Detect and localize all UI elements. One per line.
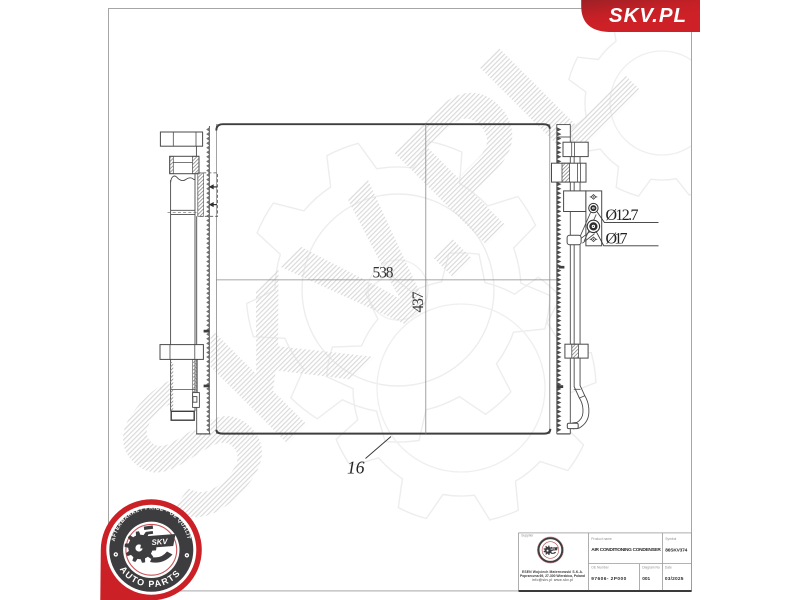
svg-text:97606- 2P000: 97606- 2P000: [591, 576, 626, 582]
svg-text:Ø12.7: Ø12.7: [606, 207, 639, 224]
svg-text:03/2025: 03/2025: [665, 576, 684, 582]
svg-text:AIR CONDITIONING CONDENSER: AIR CONDITIONING CONDENSER: [591, 547, 661, 553]
svg-text:16: 16: [347, 458, 365, 478]
svg-text:Symbol: Symbol: [665, 537, 676, 541]
svg-text:437: 437: [410, 291, 427, 312]
svg-text:001: 001: [642, 576, 650, 582]
svg-text:SKV: SKV: [550, 549, 555, 551]
svg-text:Supplier: Supplier: [521, 534, 534, 538]
svg-text:Ø17: Ø17: [606, 230, 628, 247]
svg-text:Date: Date: [665, 566, 672, 570]
svg-text:OE Number: OE Number: [591, 566, 609, 570]
svg-text:info@skv.pl www.skv.pl: info@skv.pl www.skv.pl: [532, 578, 573, 582]
svg-text:538: 538: [373, 265, 394, 282]
svg-text:SKV.PL: SKV.PL: [609, 4, 687, 27]
svg-text:Product name: Product name: [591, 537, 612, 541]
svg-text:86SKV374: 86SKV374: [665, 548, 687, 554]
svg-text:ESEN Wojciech Maternowski S.K.: ESEN Wojciech Maternowski S.K.A.: [522, 570, 583, 574]
svg-text:Poprzeczna 69, 27-300 Wierzbic: Poprzeczna 69, 27-300 Wierzbica, Poland: [520, 574, 585, 578]
svg-text:SKV: SKV: [151, 537, 168, 547]
svg-text:Diagram No: Diagram No: [642, 566, 660, 570]
